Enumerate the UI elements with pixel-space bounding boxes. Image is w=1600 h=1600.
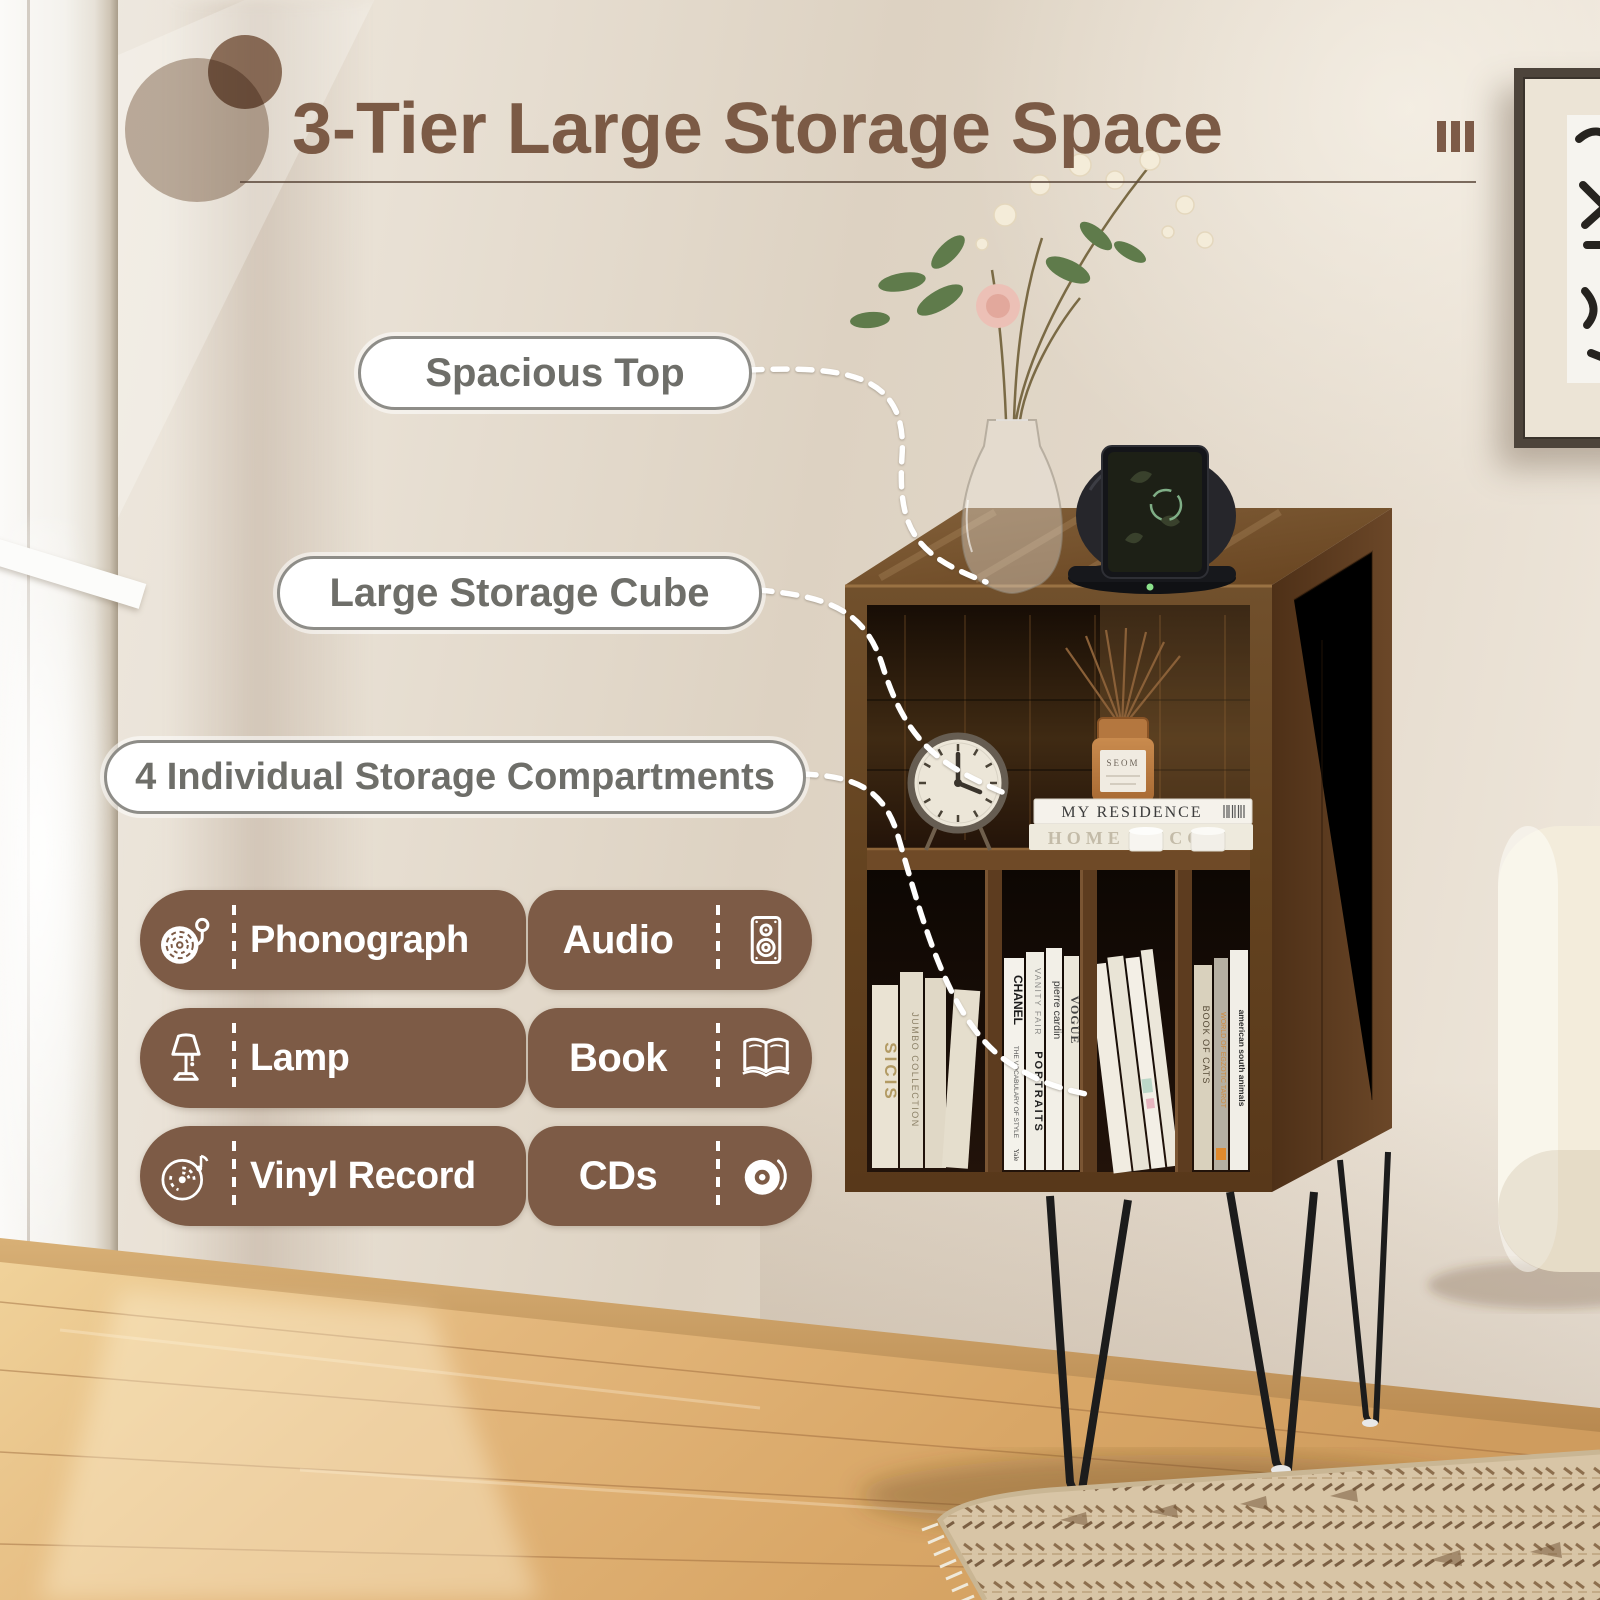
cd-icon	[734, 1144, 798, 1208]
title-underline	[240, 181, 1476, 183]
feature-badge-audio: Audio	[528, 890, 812, 990]
svg-text:THE VOCABULARY OF STYLE: THE VOCABULARY OF STYLE	[1012, 1046, 1019, 1139]
lamp-icon	[154, 1026, 218, 1090]
feature-badge-book: Book	[528, 1008, 812, 1108]
feature-label: Book	[534, 1036, 702, 1081]
svg-text:SEOM: SEOM	[1106, 758, 1139, 768]
feature-badge-vinyl-record: Vinyl Record	[140, 1126, 526, 1226]
dashed-divider	[716, 905, 720, 975]
phonograph-icon	[154, 908, 218, 972]
feature-label: Vinyl Record	[250, 1155, 476, 1198]
books-compartment-1: SICIS JUMBO COLLECTION	[872, 972, 980, 1169]
feature-label: CDs	[534, 1154, 702, 1199]
svg-text:CHANEL: CHANEL	[1011, 975, 1025, 1025]
svg-text:Yale: Yale	[1012, 1149, 1020, 1162]
feature-label: Phonograph	[250, 919, 469, 962]
books-compartment-4: BOOK OF CATS WORLD OF EGZOTIC TAROT amer…	[1194, 950, 1248, 1170]
books-compartment-2: CHANEL THE VOCABULARY OF STYLE Yale VANI…	[1004, 948, 1082, 1170]
svg-text:SICIS: SICIS	[881, 1042, 900, 1101]
svg-text:VANITY FAIR: VANITY FAIR	[1033, 968, 1043, 1036]
pink-peony	[976, 284, 1020, 328]
svg-text:american south animals: american south animals	[1237, 1010, 1247, 1107]
sofa-armrest	[1428, 826, 1600, 1309]
callout-4-compartments: 4 Individual Storage Compartments	[104, 740, 806, 814]
phone-charging-dock	[1068, 446, 1236, 594]
callout-spacious-top: Spacious Top	[358, 336, 752, 410]
dashed-divider	[232, 1141, 236, 1211]
svg-text:PORTRAITS: PORTRAITS	[1032, 1051, 1044, 1133]
svg-text:JUMBO COLLECTION: JUMBO COLLECTION	[910, 1012, 920, 1128]
svg-text:MY RESIDENCE: MY RESIDENCE	[1061, 804, 1202, 821]
callout-large-storage-cube: Large Storage Cube	[277, 556, 762, 630]
callout-label: Spacious Top	[425, 351, 684, 396]
svg-text:pierre cardin: pierre cardin	[1051, 981, 1063, 1040]
glass-vase	[962, 420, 1062, 593]
decor-book-stack: MY RESIDENCE HOME DECOR	[1029, 799, 1253, 851]
svg-text:WORLD OF EGZOTIC TAROT: WORLD OF EGZOTIC TAROT	[1219, 1012, 1226, 1109]
feature-label: Audio	[534, 918, 702, 963]
decor-circle-small	[208, 35, 282, 109]
open-book-icon	[734, 1026, 798, 1090]
svg-text:VOGUE: VOGUE	[1068, 996, 1082, 1045]
svg-text:BOOK OF CATS: BOOK OF CATS	[1201, 1006, 1211, 1085]
vinyl-record-icon	[154, 1144, 218, 1208]
feature-badge-phonograph: Phonograph	[140, 890, 526, 990]
dashed-divider	[232, 1023, 236, 1093]
speaker-icon	[734, 908, 798, 972]
triple-bars-icon	[1437, 121, 1474, 152]
callout-label: 4 Individual Storage Compartments	[135, 756, 775, 799]
page-title: 3-Tier Large Storage Space	[292, 88, 1432, 170]
product-infographic: SICIS JUMBO COLLECTION CHANEL THE VOCABU…	[0, 0, 1600, 1600]
feature-badge-lamp: Lamp	[140, 1008, 526, 1108]
feature-label: Lamp	[250, 1037, 349, 1080]
feature-badge-cds: CDs	[528, 1126, 812, 1226]
dashed-divider	[232, 905, 236, 975]
callout-label: Large Storage Cube	[329, 571, 709, 616]
charging-led	[1147, 584, 1154, 591]
record-stand-cabinet: SICIS JUMBO COLLECTION CHANEL THE VOCABU…	[845, 508, 1392, 1192]
dashed-divider	[716, 1141, 720, 1211]
dashed-divider	[716, 1023, 720, 1093]
